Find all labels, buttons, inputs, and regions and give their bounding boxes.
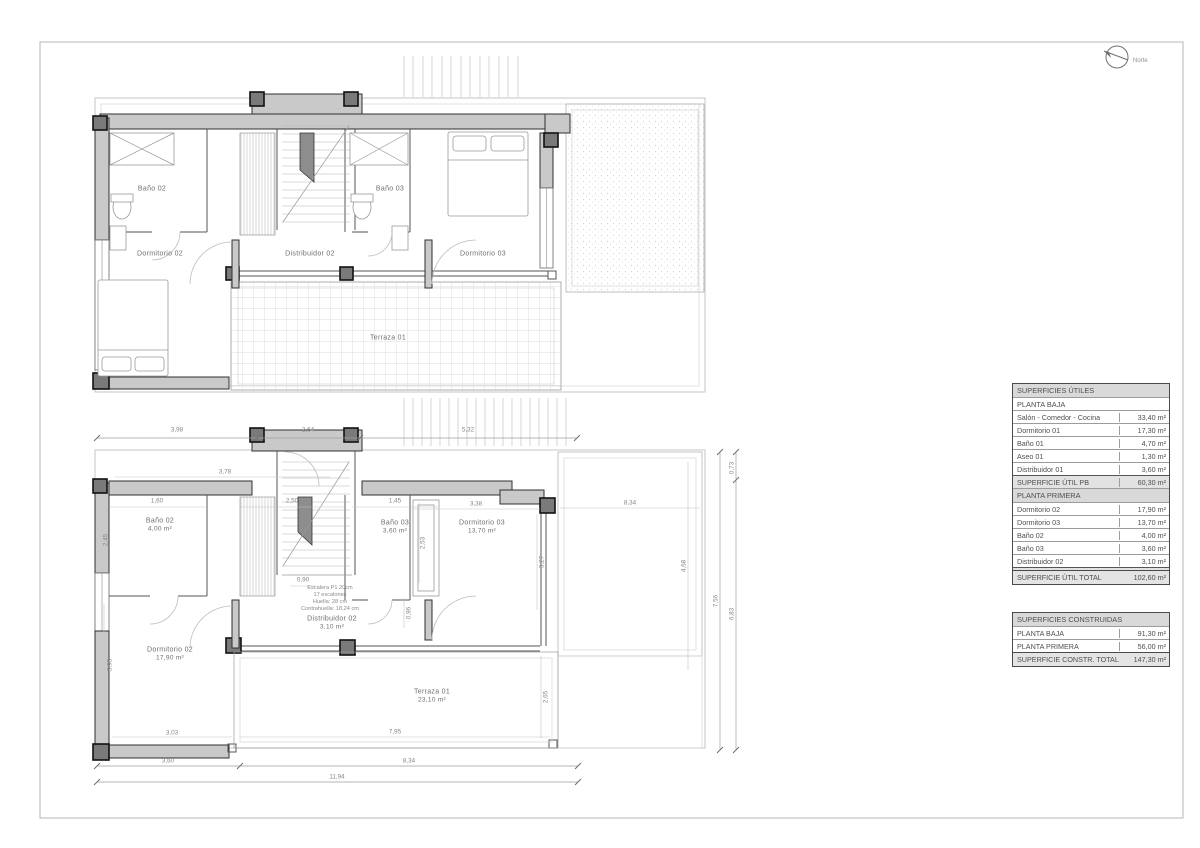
table-row: Distribuidor 02 3,10 m²: [1013, 554, 1169, 567]
upper-floor-plan: [93, 56, 705, 392]
dim-label: 1,60: [151, 498, 163, 505]
dim-label: 3,38: [470, 501, 482, 508]
wardrobe-hatch: [240, 133, 275, 235]
dim-label: 3,93: [107, 659, 114, 671]
row-value: 147,30 m²: [1120, 655, 1169, 664]
row-value: 13,70 m²: [1119, 518, 1169, 527]
table-superficies-construidas: SUPERFICIES CONSTRUIDAS PLANTA BAJA 91,3…: [1012, 612, 1170, 653]
room-label-distribuidor-02-upper: Distribuidor 02: [285, 251, 335, 258]
dim-label: 0,73: [729, 462, 736, 474]
room-label-terraza-01: Terraza 01: [414, 689, 450, 696]
dim-label: 7,95: [389, 729, 401, 736]
row-value: 1,30 m²: [1119, 452, 1169, 461]
room-label-distribuidor-02: Distribuidor 02: [307, 616, 357, 623]
row-value: 3,60 m²: [1119, 465, 1169, 474]
stair-note-line: Huella: 28 cm: [313, 599, 347, 605]
room-area-banio-02: 4,00 m²: [148, 526, 172, 533]
stair-note-line: Escalera P1 20cm: [307, 585, 352, 591]
dim-label: 0,90: [297, 577, 309, 584]
row-label: Salón - Comedor - Cocina: [1013, 413, 1119, 422]
table-row: Baño 01 4,70 m²: [1013, 436, 1169, 449]
dim-label: 2,45: [103, 534, 110, 546]
table-section-header: PLANTA PRIMERA: [1013, 488, 1169, 502]
room-label-dormitorio-02-upper: Dormitorio 02: [137, 251, 183, 258]
room-area-terraza-01: 23,10 m²: [418, 697, 446, 704]
dim-label: 6,83: [729, 608, 736, 620]
dim-label: 3,03: [166, 730, 178, 737]
room-label-dormitorio-03: Dormitorio 03: [459, 520, 505, 527]
row-label: SUPERFICIE CONSTR. TOTAL: [1013, 655, 1120, 664]
row-label: Baño 01: [1013, 439, 1119, 448]
row-value: 17,90 m²: [1119, 505, 1169, 514]
row-value: 91,30 m²: [1119, 629, 1169, 638]
dim-label: 0,96: [406, 607, 413, 619]
staircase-upper: [282, 126, 350, 222]
room-label-banio-02-upper: Baño 02: [138, 186, 166, 193]
staircase-lower: [282, 462, 352, 575]
dim-label: 2,65: [543, 691, 550, 703]
superficie-constr-total-box: SUPERFICIE CONSTR. TOTAL 147,30 m²: [1012, 652, 1170, 667]
row-value: 3,60 m²: [1119, 544, 1169, 553]
room-label-terraza-01-upper: Terraza 01: [370, 335, 406, 342]
room-area-dormitorio-03: 13,70 m²: [468, 528, 496, 535]
row-label: Dormitorio 01: [1013, 426, 1119, 435]
table-row: Dormitorio 02 17,90 m²: [1013, 502, 1169, 515]
dim-label: 8,34: [624, 500, 636, 507]
table-section-header: PLANTA BAJA: [1013, 397, 1169, 410]
row-label: Dormitorio 02: [1013, 505, 1119, 514]
row-label: Distribuidor 02: [1013, 557, 1119, 566]
superficie-util-total-box: SUPERFICIE ÚTIL TOTAL 102,60 m²: [1012, 570, 1170, 585]
room-label-banio-03-upper: Baño 03: [376, 186, 404, 193]
table-title-row: SUPERFICIES ÚTILES: [1013, 384, 1169, 397]
table-title-row: SUPERFICIES CONSTRUIDAS: [1013, 613, 1169, 626]
row-value: 102,60 m²: [1120, 573, 1169, 582]
lower-floor-plan: [93, 398, 739, 785]
table-title: SUPERFICIES CONSTRUIDAS: [1013, 615, 1169, 624]
dim-label: 1,45: [389, 498, 401, 505]
row-label: Baño 02: [1013, 531, 1119, 540]
table-row: Baño 02 4,00 m²: [1013, 528, 1169, 541]
dim-label: 2,53: [420, 537, 427, 549]
row-label: Dormitorio 03: [1013, 518, 1119, 527]
dim-label: 3,60: [162, 758, 174, 765]
stair-note-line: Contrahuella: 18,24 cm: [301, 606, 359, 612]
row-value: 3,10 m²: [1119, 557, 1169, 566]
dim-label: 4,68: [681, 560, 688, 572]
room-area-distribuidor-02: 3,10 m²: [320, 624, 344, 631]
table-row: PLANTA BAJA 91,30 m²: [1013, 626, 1169, 639]
room-label-banio-02: Baño 02: [146, 518, 174, 525]
table-row: PLANTA PRIMERA 56,00 m²: [1013, 639, 1169, 652]
table-row: Salón - Comedor - Cocina 33,40 m²: [1013, 410, 1169, 423]
dim-label: 3,98: [171, 427, 183, 434]
row-value: 33,40 m²: [1119, 413, 1169, 422]
row-label: SUPERFICIE ÚTIL PB: [1013, 478, 1119, 487]
table-total-row: SUPERFICIE ÚTIL PB 60,30 m²: [1013, 475, 1169, 488]
room-label-dormitorio-02: Dormitorio 02: [147, 647, 193, 654]
table-superficies-utiles: SUPERFICIES ÚTILES PLANTA BAJA Salón - C…: [1012, 383, 1170, 581]
table-row: Dormitorio 03 13,70 m²: [1013, 515, 1169, 528]
dim-label: 2,50: [286, 498, 298, 505]
row-label: PLANTA PRIMERA: [1013, 642, 1119, 651]
row-label: PLANTA BAJA: [1013, 629, 1119, 638]
north-label: Norte: [1133, 58, 1148, 64]
table-row: Dormitorio 01 17,30 m²: [1013, 423, 1169, 436]
room-area-banio-03: 3,60 m²: [383, 528, 407, 535]
row-label: Baño 03: [1013, 544, 1119, 553]
dim-label: 8,34: [403, 758, 415, 765]
bed-dormitorio-02: [98, 280, 168, 376]
dim-label: 5,32: [462, 427, 474, 434]
stair-note-line: 17 escalones: [314, 592, 347, 598]
row-label: Distribuidor 01: [1013, 465, 1119, 474]
table-row: Baño 03 3,60 m²: [1013, 541, 1169, 554]
table-row: Distribuidor 01 3,60 m²: [1013, 462, 1169, 475]
room-label-banio-03: Baño 03: [381, 520, 409, 527]
section-header-label: PLANTA BAJA: [1013, 400, 1169, 409]
row-value: 4,70 m²: [1119, 439, 1169, 448]
row-value: 56,00 m²: [1119, 642, 1169, 651]
row-label: Aseo 01: [1013, 452, 1119, 461]
table-row: Aseo 01 1,30 m²: [1013, 449, 1169, 462]
roof-gravel-area: [566, 104, 704, 292]
row-label: SUPERFICIE ÚTIL TOTAL: [1013, 573, 1120, 582]
north-arrow-icon: [1104, 46, 1128, 68]
dim-label: 2,64: [302, 427, 314, 434]
dim-label: 3,27: [539, 556, 546, 568]
row-value: 60,30 m²: [1119, 478, 1169, 487]
row-value: 4,00 m²: [1119, 531, 1169, 540]
section-header-label: PLANTA PRIMERA: [1013, 491, 1169, 500]
dim-label: 3,78: [219, 469, 231, 476]
room-label-dormitorio-03-upper: Dormitorio 03: [460, 251, 506, 258]
dim-label: 7,56: [713, 595, 720, 607]
room-area-dormitorio-02: 17,90 m²: [156, 655, 184, 662]
table-title: SUPERFICIES ÚTILES: [1013, 386, 1169, 395]
row-value: 17,30 m²: [1119, 426, 1169, 435]
dim-label: 11,94: [329, 774, 344, 781]
bed-dormitorio-03: [448, 132, 528, 216]
drawing-sheet: Baño 02 Baño 03 Dormitorio 02 Distribuid…: [0, 0, 1200, 848]
